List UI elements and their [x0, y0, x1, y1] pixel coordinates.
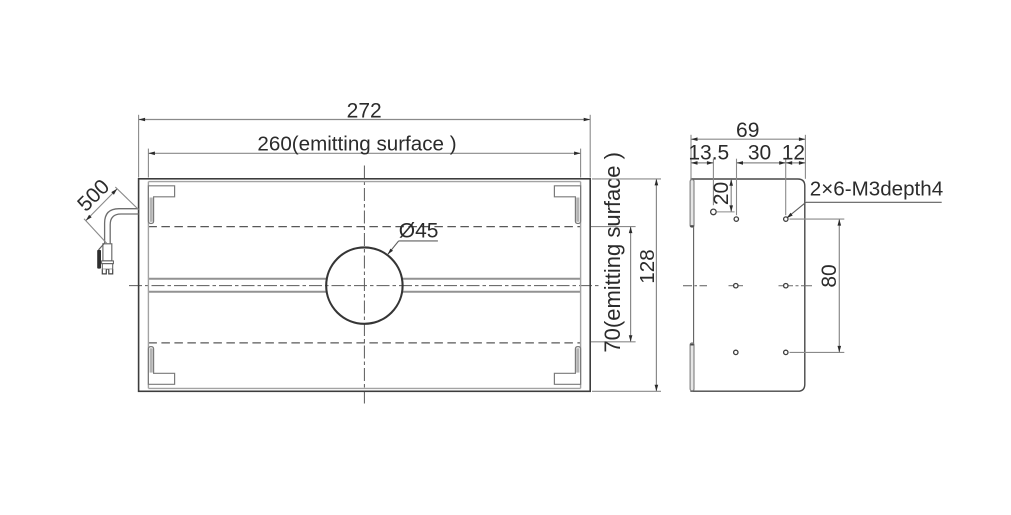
svg-text:69: 69 [736, 119, 759, 142]
svg-text:260(emitting surface ): 260(emitting surface ) [257, 132, 456, 155]
svg-text:20: 20 [710, 182, 733, 205]
svg-text:13.5: 13.5 [688, 141, 729, 164]
svg-text:Ø45: Ø45 [399, 220, 439, 243]
svg-text:272: 272 [347, 100, 382, 123]
svg-text:70(emitting surface ): 70(emitting surface ) [600, 152, 625, 353]
svg-text:80: 80 [818, 264, 841, 287]
svg-text:12: 12 [782, 141, 805, 164]
svg-text:128: 128 [636, 249, 659, 283]
svg-text:2×6-M3depth4: 2×6-M3depth4 [810, 178, 943, 201]
svg-text:30: 30 [748, 141, 771, 164]
